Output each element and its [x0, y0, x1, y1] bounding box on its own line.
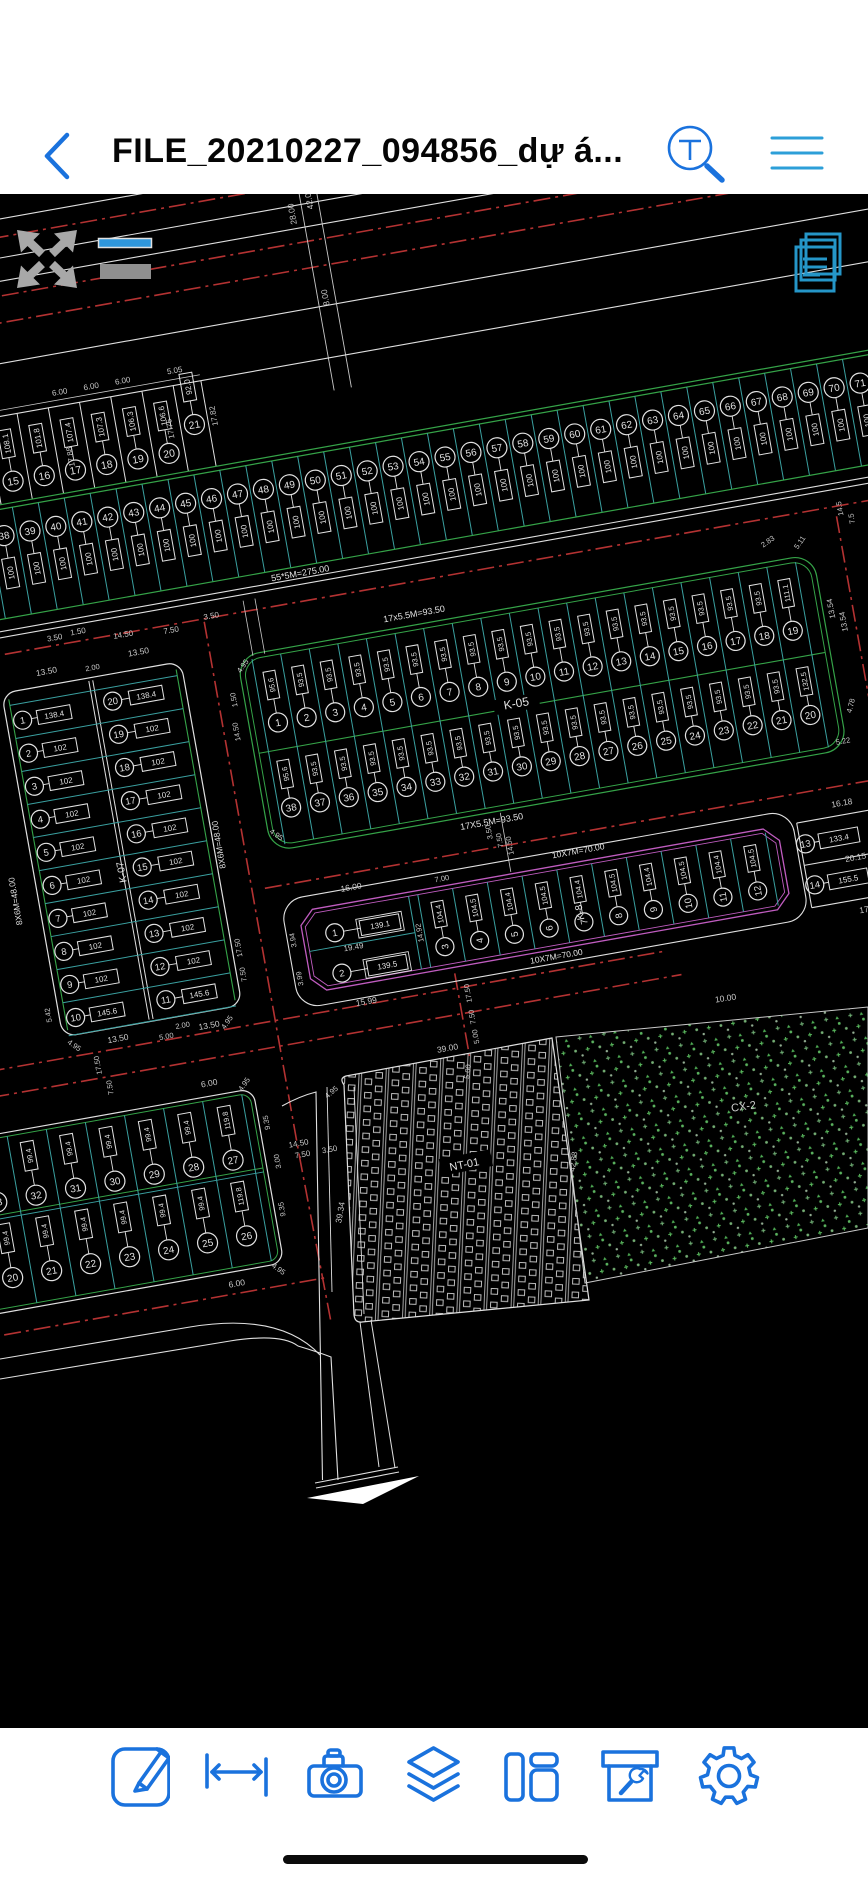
svg-text:65: 65 [698, 405, 711, 418]
svg-text:100: 100 [83, 551, 94, 566]
svg-text:1: 1 [19, 715, 26, 727]
svg-text:1.50: 1.50 [228, 692, 239, 708]
svg-text:2.83: 2.83 [759, 534, 776, 550]
svg-text:93.5: 93.5 [323, 667, 334, 683]
svg-text:9: 9 [503, 677, 511, 689]
svg-text:16: 16 [130, 828, 142, 841]
svg-text:44: 44 [153, 502, 166, 515]
svg-text:17: 17 [124, 795, 136, 808]
svg-text:68: 68 [776, 392, 789, 405]
svg-text:19: 19 [787, 625, 800, 638]
svg-text:3.50: 3.50 [321, 1144, 338, 1156]
svg-text:100: 100 [31, 560, 42, 575]
svg-text:5: 5 [389, 697, 397, 709]
svg-text:93.5: 93.5 [770, 679, 781, 695]
svg-text:99.4: 99.4 [39, 1223, 50, 1239]
svg-text:12: 12 [586, 661, 599, 674]
svg-text:20: 20 [162, 447, 176, 461]
svg-text:93.5: 93.5 [609, 616, 620, 632]
svg-text:43: 43 [127, 507, 140, 520]
svg-text:100: 100 [680, 445, 691, 460]
svg-text:17.82: 17.82 [207, 405, 219, 427]
svg-text:14.92: 14.92 [414, 923, 426, 943]
svg-text:33: 33 [429, 776, 442, 789]
svg-text:99.4: 99.4 [63, 1141, 74, 1157]
svg-text:93.5: 93.5 [366, 751, 377, 767]
svg-text:32: 32 [30, 1190, 43, 1203]
svg-text:102: 102 [157, 789, 172, 800]
svg-text:28.00: 28.00 [285, 202, 299, 225]
svg-text:10X7M=70.00: 10X7M=70.00 [551, 841, 605, 860]
svg-text:4.78: 4.78 [844, 697, 856, 713]
svg-text:20.15: 20.15 [844, 850, 867, 864]
svg-text:64: 64 [672, 410, 685, 423]
svg-text:102: 102 [180, 922, 195, 933]
svg-text:3: 3 [440, 943, 452, 950]
svg-text:100: 100 [732, 436, 743, 451]
svg-text:28: 28 [187, 1162, 200, 1175]
svg-text:13: 13 [148, 928, 160, 941]
svg-text:100: 100 [213, 528, 224, 543]
svg-text:17: 17 [729, 636, 742, 649]
svg-text:46: 46 [205, 493, 218, 506]
svg-text:100: 100 [57, 556, 68, 571]
svg-text:9: 9 [66, 979, 73, 991]
svg-text:55: 55 [439, 452, 452, 465]
svg-text:100: 100 [187, 533, 198, 548]
svg-text:3.50: 3.50 [46, 632, 63, 644]
svg-text:42: 42 [102, 512, 115, 525]
svg-text:102: 102 [82, 908, 97, 919]
svg-text:63: 63 [646, 415, 659, 428]
svg-text:93.5: 93.5 [540, 720, 551, 736]
svg-text:6.00: 6.00 [200, 1077, 218, 1090]
svg-text:30: 30 [109, 1176, 122, 1189]
svg-text:13.50: 13.50 [198, 1018, 221, 1032]
svg-text:100: 100 [239, 523, 250, 538]
svg-text:102: 102 [151, 756, 166, 767]
svg-text:95.6: 95.6 [280, 766, 291, 782]
svg-text:19: 19 [131, 453, 145, 467]
svg-text:21: 21 [45, 1265, 58, 1278]
svg-text:14: 14 [644, 651, 657, 664]
svg-text:8.00: 8.00 [319, 288, 332, 306]
svg-text:93.5: 93.5 [724, 595, 735, 611]
svg-text:6: 6 [49, 880, 56, 892]
svg-text:K-8: K-8 [574, 903, 588, 921]
svg-text:133.4: 133.4 [828, 832, 850, 844]
svg-text:8X6M=48.00: 8X6M=48.00 [6, 876, 24, 926]
svg-text:7.50: 7.50 [163, 624, 180, 636]
svg-text:93.5: 93.5 [409, 652, 420, 668]
svg-text:59: 59 [543, 433, 556, 446]
svg-text:5: 5 [509, 931, 521, 938]
svg-text:93.5: 93.5 [581, 621, 592, 637]
svg-text:100: 100 [5, 565, 16, 580]
svg-text:32: 32 [458, 771, 471, 784]
svg-text:26: 26 [631, 740, 644, 753]
svg-text:56: 56 [465, 447, 478, 460]
svg-text:6: 6 [544, 924, 556, 931]
svg-text:2: 2 [25, 748, 32, 760]
svg-text:2.00: 2.00 [175, 1020, 191, 1031]
svg-text:1: 1 [331, 928, 338, 940]
svg-text:3.99: 3.99 [294, 971, 305, 987]
svg-text:39.34: 39.34 [333, 1201, 347, 1224]
svg-text:6.00: 6.00 [228, 1277, 246, 1290]
svg-text:100: 100 [135, 542, 146, 557]
svg-text:102: 102 [163, 823, 178, 834]
svg-text:100: 100 [576, 463, 587, 478]
svg-text:14.50: 14.50 [288, 1137, 310, 1149]
svg-text:145.6: 145.6 [189, 988, 211, 1000]
svg-text:35: 35 [371, 787, 384, 800]
svg-text:93.5: 93.5 [395, 745, 406, 761]
svg-text:66: 66 [724, 401, 737, 414]
svg-text:100: 100 [421, 491, 432, 506]
svg-text:100: 100 [395, 496, 406, 511]
svg-text:11: 11 [160, 994, 172, 1007]
svg-text:100: 100 [109, 547, 120, 562]
svg-text:6.00: 6.00 [83, 381, 100, 393]
svg-text:99.4: 99.4 [181, 1120, 192, 1136]
svg-text:3.50: 3.50 [483, 824, 494, 840]
svg-text:93.5: 93.5 [511, 725, 522, 741]
svg-text:4.95: 4.95 [270, 1261, 287, 1277]
svg-text:21: 21 [188, 418, 202, 432]
svg-text:62: 62 [620, 419, 633, 432]
svg-text:93.5: 93.5 [453, 735, 464, 751]
svg-text:93.5: 93.5 [741, 684, 752, 700]
svg-text:3.94: 3.94 [287, 932, 298, 948]
svg-text:69: 69 [802, 387, 815, 400]
svg-text:20: 20 [6, 1272, 19, 1285]
svg-text:99.4: 99.4 [0, 1230, 11, 1246]
svg-text:4: 4 [475, 937, 487, 944]
svg-text:30: 30 [516, 761, 529, 774]
svg-text:3.50: 3.50 [203, 610, 220, 622]
svg-text:119.8: 119.8 [221, 1111, 233, 1131]
svg-text:3: 3 [31, 781, 38, 793]
svg-text:13.50: 13.50 [127, 645, 150, 659]
svg-text:25: 25 [660, 735, 673, 748]
svg-text:102: 102 [53, 742, 68, 753]
svg-text:11: 11 [718, 891, 731, 903]
svg-text:11: 11 [558, 666, 571, 679]
svg-text:100: 100 [758, 431, 769, 446]
svg-text:10: 10 [70, 1012, 82, 1025]
svg-text:25: 25 [201, 1237, 214, 1250]
svg-text:102: 102 [145, 723, 160, 734]
svg-text:31: 31 [69, 1183, 82, 1196]
svg-text:54: 54 [413, 456, 426, 469]
svg-text:48: 48 [257, 484, 270, 497]
svg-text:19: 19 [113, 729, 125, 742]
svg-text:100: 100 [602, 459, 613, 474]
svg-text:4: 4 [37, 814, 44, 826]
svg-text:17.50: 17.50 [462, 983, 474, 1003]
svg-text:93.5: 93.5 [667, 606, 678, 622]
svg-text:102: 102 [88, 941, 103, 952]
svg-text:4: 4 [360, 702, 368, 714]
svg-text:93.5: 93.5 [752, 590, 763, 606]
svg-text:92.0: 92.0 [182, 378, 194, 395]
svg-text:100: 100 [447, 486, 458, 501]
svg-text:2: 2 [303, 712, 311, 724]
svg-text:93.5: 93.5 [495, 636, 506, 652]
svg-text:45: 45 [179, 498, 192, 511]
svg-text:23: 23 [718, 725, 731, 738]
svg-text:21: 21 [775, 715, 788, 728]
svg-text:57: 57 [491, 442, 504, 455]
svg-text:102: 102 [168, 856, 183, 867]
svg-text:16: 16 [701, 641, 714, 654]
svg-text:16.00: 16.00 [340, 880, 363, 894]
svg-text:100: 100 [369, 500, 380, 515]
svg-text:22: 22 [746, 720, 759, 733]
svg-text:71: 71 [854, 378, 867, 391]
svg-text:8: 8 [475, 682, 483, 694]
svg-text:14.50: 14.50 [504, 836, 516, 856]
svg-text:5.05: 5.05 [166, 365, 183, 377]
svg-text:7: 7 [55, 913, 62, 925]
svg-text:5.00: 5.00 [470, 1029, 481, 1045]
svg-text:3: 3 [332, 707, 340, 719]
svg-text:5.22: 5.22 [835, 735, 851, 746]
svg-text:102: 102 [76, 875, 91, 886]
svg-text:41: 41 [76, 516, 89, 529]
svg-text:100: 100 [472, 482, 483, 497]
svg-text:37: 37 [314, 797, 327, 810]
svg-text:24: 24 [162, 1244, 175, 1257]
svg-text:14.5: 14.5 [834, 501, 845, 517]
svg-text:2: 2 [339, 968, 346, 980]
svg-text:99.4: 99.4 [117, 1209, 128, 1225]
svg-text:93.5: 93.5 [338, 756, 349, 772]
svg-text:18: 18 [758, 630, 771, 643]
svg-text:93.5: 93.5 [597, 709, 608, 725]
svg-text:6.00: 6.00 [51, 386, 68, 398]
svg-text:17.50: 17.50 [92, 1055, 104, 1075]
svg-text:17.50: 17.50 [232, 938, 244, 958]
svg-text:49: 49 [283, 479, 296, 492]
svg-text:18: 18 [100, 458, 114, 472]
svg-text:23: 23 [123, 1251, 136, 1264]
svg-text:102: 102 [65, 808, 80, 819]
svg-text:2.00: 2.00 [85, 662, 101, 673]
svg-text:93.5: 93.5 [523, 631, 534, 647]
svg-text:31: 31 [487, 766, 500, 779]
svg-text:100: 100 [550, 468, 561, 483]
svg-text:16.18: 16.18 [830, 796, 853, 810]
svg-text:33: 33 [0, 1197, 4, 1210]
svg-text:15: 15 [672, 646, 685, 659]
svg-text:100: 100 [317, 510, 328, 525]
svg-text:13: 13 [615, 656, 628, 669]
svg-text:61: 61 [594, 424, 607, 437]
svg-text:50: 50 [309, 475, 322, 488]
svg-text:10.00: 10.00 [714, 991, 737, 1004]
svg-text:14: 14 [809, 879, 821, 892]
svg-text:K-07: K-07 [115, 860, 130, 883]
svg-text:99.4: 99.4 [156, 1202, 167, 1218]
svg-text:93.5: 93.5 [381, 657, 392, 673]
svg-text:139.5: 139.5 [377, 959, 399, 971]
svg-text:7.50: 7.50 [237, 966, 248, 982]
svg-text:24: 24 [689, 730, 702, 743]
svg-text:102: 102 [186, 955, 201, 966]
svg-text:8: 8 [60, 946, 67, 958]
svg-text:15: 15 [136, 862, 148, 875]
svg-text:7.50: 7.50 [104, 1080, 115, 1096]
svg-text:93.5: 93.5 [655, 699, 666, 715]
svg-text:99.4: 99.4 [78, 1216, 89, 1232]
svg-text:99.4: 99.4 [142, 1127, 153, 1143]
svg-text:93.5: 93.5 [638, 611, 649, 627]
svg-text:3.00: 3.00 [272, 1153, 283, 1169]
svg-text:6: 6 [417, 692, 425, 704]
svg-text:93.5: 93.5 [713, 689, 724, 705]
svg-text:7.5: 7.5 [846, 513, 857, 525]
svg-text:100: 100 [161, 537, 172, 552]
svg-text:4.95: 4.95 [236, 1076, 252, 1093]
svg-text:26: 26 [240, 1231, 253, 1244]
svg-text:138.4: 138.4 [44, 709, 66, 721]
svg-text:99.4: 99.4 [24, 1148, 35, 1164]
svg-text:8: 8 [614, 912, 626, 919]
svg-text:9: 9 [648, 906, 660, 913]
svg-text:70: 70 [828, 382, 841, 395]
svg-text:39.00: 39.00 [436, 1041, 459, 1055]
svg-text:60: 60 [568, 429, 581, 442]
svg-text:13.54: 13.54 [837, 611, 849, 633]
svg-text:100: 100 [265, 519, 276, 534]
svg-text:8X6M=48.00: 8X6M=48.00 [209, 820, 227, 870]
svg-text:38: 38 [285, 802, 298, 815]
svg-text:27: 27 [602, 746, 615, 759]
svg-text:6.00: 6.00 [114, 375, 131, 387]
svg-text:40: 40 [50, 521, 63, 534]
svg-text:4.95: 4.95 [323, 1084, 340, 1100]
svg-text:10: 10 [683, 897, 696, 909]
svg-text:93.5: 93.5 [309, 761, 320, 777]
svg-text:34: 34 [400, 782, 413, 795]
svg-text:5.11: 5.11 [792, 534, 807, 551]
svg-text:155.5: 155.5 [838, 873, 860, 885]
svg-text:93.5: 93.5 [695, 601, 706, 617]
svg-text:29: 29 [544, 756, 557, 769]
svg-text:22: 22 [84, 1258, 97, 1271]
svg-text:95.6: 95.6 [266, 677, 277, 693]
svg-text:12: 12 [752, 885, 765, 897]
svg-text:1: 1 [274, 718, 282, 730]
svg-text:100: 100 [291, 514, 302, 529]
svg-text:19.49: 19.49 [343, 941, 365, 953]
svg-text:100: 100 [784, 426, 795, 441]
svg-text:17.88: 17.88 [64, 446, 76, 468]
svg-text:20: 20 [804, 710, 817, 723]
svg-text:18: 18 [119, 762, 131, 775]
svg-text:67: 67 [750, 396, 763, 409]
svg-text:4.95: 4.95 [66, 1038, 83, 1054]
svg-text:99.4: 99.4 [103, 1134, 114, 1150]
svg-text:100: 100 [498, 477, 509, 492]
svg-text:102: 102 [174, 889, 189, 900]
svg-text:16: 16 [38, 469, 52, 483]
svg-text:7.00: 7.00 [434, 873, 450, 884]
svg-text:100: 100 [706, 440, 717, 455]
svg-text:15.99: 15.99 [355, 994, 378, 1008]
svg-text:5.42: 5.42 [43, 1007, 54, 1023]
svg-text:38: 38 [0, 530, 11, 543]
svg-text:17.18: 17.18 [858, 902, 868, 916]
svg-text:93.5: 93.5 [552, 626, 563, 642]
svg-text:5: 5 [43, 847, 50, 859]
svg-text:47: 47 [231, 489, 244, 502]
svg-text:53: 53 [387, 461, 400, 474]
svg-text:7: 7 [446, 687, 454, 699]
svg-text:14: 14 [142, 895, 154, 908]
svg-text:36: 36 [343, 792, 356, 805]
svg-text:102: 102 [59, 775, 74, 786]
svg-text:93.5: 93.5 [466, 641, 477, 657]
svg-text:99.4: 99.4 [195, 1195, 206, 1211]
svg-text:27: 27 [227, 1155, 240, 1168]
svg-text:93.5: 93.5 [295, 672, 306, 688]
svg-text:93.5: 93.5 [352, 662, 363, 678]
svg-text:93.5: 93.5 [626, 704, 637, 720]
svg-text:100: 100 [524, 473, 535, 488]
svg-text:100: 100 [654, 449, 665, 464]
svg-text:13.50: 13.50 [35, 664, 58, 678]
svg-text:13.50: 13.50 [107, 1032, 130, 1046]
svg-text:93.5: 93.5 [482, 730, 493, 746]
svg-text:100: 100 [628, 454, 639, 469]
svg-text:9.35: 9.35 [276, 1201, 287, 1217]
svg-text:20: 20 [107, 696, 119, 709]
svg-text:102: 102 [94, 974, 109, 985]
svg-text:9.35: 9.35 [261, 1115, 272, 1131]
svg-text:7.50: 7.50 [294, 1149, 311, 1161]
svg-text:13.54: 13.54 [825, 598, 837, 620]
svg-text:93.5: 93.5 [568, 715, 579, 731]
svg-text:138.4: 138.4 [136, 689, 158, 701]
svg-text:145.6: 145.6 [97, 1006, 119, 1018]
svg-text:29: 29 [148, 1169, 161, 1182]
svg-text:52: 52 [361, 466, 374, 479]
svg-text:28: 28 [573, 751, 586, 764]
svg-text:139.1: 139.1 [369, 919, 391, 931]
svg-text:93.5: 93.5 [424, 740, 435, 756]
svg-text:93.5: 93.5 [684, 694, 695, 710]
svg-text:13: 13 [799, 838, 811, 851]
svg-text:14.50: 14.50 [113, 628, 135, 640]
svg-text:100: 100 [343, 505, 354, 520]
svg-text:100: 100 [836, 417, 847, 432]
svg-text:100: 100 [810, 422, 821, 437]
svg-text:10: 10 [529, 671, 542, 684]
svg-text:1.50: 1.50 [70, 626, 87, 638]
svg-text:93.5: 93.5 [438, 646, 449, 662]
svg-text:102: 102 [70, 841, 85, 852]
svg-text:14.50: 14.50 [230, 722, 242, 742]
svg-text:100: 100 [862, 413, 868, 428]
svg-text:119.8: 119.8 [234, 1187, 246, 1207]
svg-text:12: 12 [154, 961, 166, 974]
svg-text:58: 58 [517, 438, 530, 451]
svg-text:51: 51 [335, 470, 348, 483]
svg-text:15: 15 [6, 475, 20, 489]
